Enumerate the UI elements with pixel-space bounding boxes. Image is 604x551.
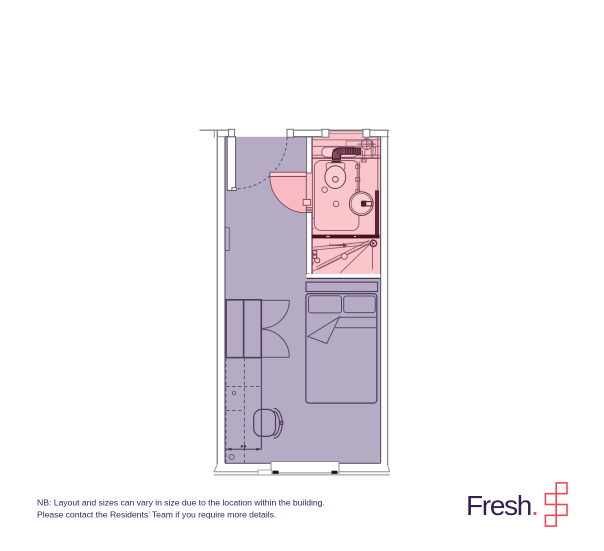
svg-text:Fresh.: Fresh.	[466, 490, 538, 521]
svg-text:Please contact the Residents’: Please contact the Residents’ Team if yo…	[37, 509, 276, 519]
svg-text:NB: Layout and sizes can vary: NB: Layout and sizes can vary in size du…	[37, 498, 325, 508]
